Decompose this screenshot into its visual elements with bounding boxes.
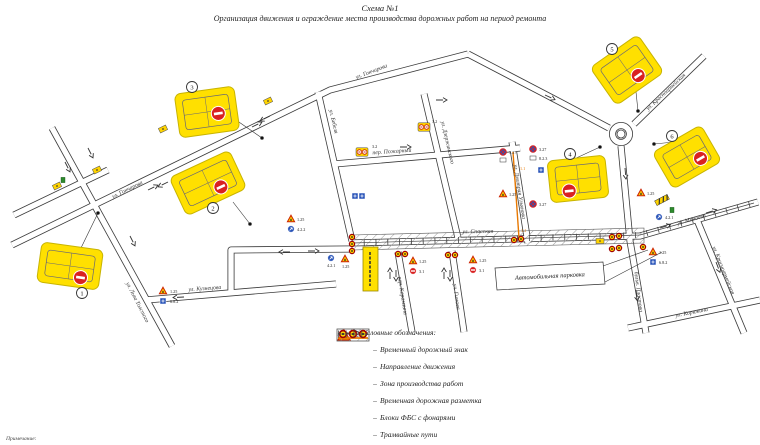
svg-text:1.25: 1.25 <box>297 217 304 222</box>
svg-text:1.25: 1.25 <box>170 289 177 294</box>
legend-row-marking: 1.1 – Временная дорожная разметка <box>336 392 556 409</box>
blue-square-sign-icon <box>160 298 166 304</box>
green-sign-icon <box>61 177 65 182</box>
blue-square-sign-icon <box>352 193 358 199</box>
detour-direction-sign-icon <box>656 214 662 220</box>
temporary-sign-icon <box>469 256 476 263</box>
svg-text:4.2.2: 4.2.2 <box>297 227 305 232</box>
street-label: бульв. Пластова <box>633 271 645 312</box>
detour-callout-3 <box>174 86 240 138</box>
mini-sign-icon <box>596 239 604 244</box>
green-sign-icon <box>670 207 674 212</box>
svg-text:1.25: 1.25 <box>419 259 426 264</box>
legend-row-temporary-sign: 1.25 – Временный дорожный знак <box>336 341 556 358</box>
svg-text:6.8.2: 6.8.2 <box>659 260 667 265</box>
mini-sign-icon <box>52 182 61 190</box>
blue-square-sign-icon <box>650 259 656 265</box>
street-label: ул. Гончарова <box>110 180 144 201</box>
road-surfaces <box>12 54 760 346</box>
legend-row-fbs: – Блоки ФБС с фонарями <box>336 409 556 426</box>
legend-label: Трамвайные пути <box>380 430 437 439</box>
temporary-sign-icon <box>287 215 294 222</box>
road-casings <box>12 54 760 346</box>
svg-text:1.25: 1.25 <box>659 250 666 255</box>
detour-callout-5 <box>590 35 664 106</box>
svg-text:1.25: 1.25 <box>479 258 486 263</box>
detour-callout-4 <box>547 155 609 203</box>
legend-row-work-zone: – Зона производства работ <box>336 375 556 392</box>
legend-label: Временная дорожная разметка <box>380 396 482 405</box>
location-marker-5: 5 <box>607 44 618 55</box>
location-marker-4: 4 <box>565 149 576 160</box>
detour-direction-sign-icon <box>288 226 294 232</box>
svg-text:3.27: 3.27 <box>509 150 516 155</box>
footnote: Примечание: <box>6 436 36 442</box>
temporary-sign-icon <box>637 189 644 196</box>
legend-label: Направление движения <box>380 362 455 371</box>
no-stopping-sign-icon <box>530 201 536 207</box>
sign-plate-icon <box>530 156 536 160</box>
temporary-sign-icon <box>159 287 166 294</box>
svg-text:1.1: 1.1 <box>521 228 526 233</box>
location-marker-2: 2 <box>208 203 219 214</box>
detour-direction-sign-icon <box>328 255 334 261</box>
blue-square-sign-icon <box>538 167 544 173</box>
detour-callout-6 <box>652 125 721 189</box>
mini-sign-icon <box>158 125 167 133</box>
blue-square-sign-icon <box>359 193 365 199</box>
work-zone-panel <box>363 247 378 291</box>
roundabout-island <box>617 130 625 138</box>
no-entry-sign-icon <box>470 267 476 273</box>
legend-row-tram: – Трамвайные пути <box>336 426 556 443</box>
scheme-page: { "title": { "line1": "Схема №1", "line2… <box>0 0 760 445</box>
temporary-sign-icon <box>341 255 348 262</box>
temporary-sign-icon <box>499 190 506 197</box>
svg-text:1: 1 <box>80 291 83 298</box>
svg-text:2: 2 <box>211 206 214 213</box>
framed-signs-icon <box>418 123 430 131</box>
framed-signs-icon <box>356 148 368 156</box>
svg-text:3.2: 3.2 <box>432 119 437 124</box>
detour-callout-1 <box>37 242 104 290</box>
svg-text:3.27: 3.27 <box>539 202 546 207</box>
svg-text:1.25: 1.25 <box>509 192 516 197</box>
legend-row-direction: – Направление движения <box>336 358 556 375</box>
mini-sign-icon <box>263 97 272 105</box>
svg-text:3.1: 3.1 <box>419 269 424 274</box>
svg-text:3.2: 3.2 <box>372 144 377 149</box>
legend-header: Условные обозначения: <box>362 328 556 337</box>
svg-text:1.25: 1.25 <box>647 191 654 196</box>
temporary-sign-icon <box>649 248 656 255</box>
striped-board-icon <box>655 194 670 205</box>
svg-text:3.1: 3.1 <box>479 268 484 273</box>
location-marker-3: 3 <box>187 82 198 93</box>
svg-text:1.1: 1.1 <box>520 166 525 171</box>
svg-text:8.2.3: 8.2.3 <box>539 156 547 161</box>
street-label: ул. Спасская <box>462 229 494 236</box>
svg-text:4.2.1: 4.2.1 <box>327 263 335 268</box>
svg-text:3.27: 3.27 <box>539 147 546 152</box>
no-stopping-sign-icon <box>530 146 536 152</box>
no-entry-sign-icon <box>410 268 416 274</box>
svg-text:6.8.2: 6.8.2 <box>170 299 178 304</box>
no-stopping-sign-icon <box>500 149 506 155</box>
sign-plate-icon <box>500 158 506 162</box>
svg-text:5: 5 <box>610 47 613 54</box>
legend-label: Временный дорожный знак <box>380 345 468 354</box>
location-marker-1: 1 <box>77 288 88 299</box>
temporary-sign-icon <box>409 257 416 264</box>
legend-label: Блоки ФБС с фонарями <box>380 413 455 422</box>
svg-text:1.25: 1.25 <box>342 264 349 269</box>
svg-text:4.2.1: 4.2.1 <box>665 215 673 220</box>
location-marker-6: 6 <box>667 131 678 142</box>
legend-label: Зона производства работ <box>380 379 463 388</box>
legend: Условные обозначения: 1.25 – Временный д… <box>336 328 556 443</box>
svg-text:3: 3 <box>190 85 193 92</box>
